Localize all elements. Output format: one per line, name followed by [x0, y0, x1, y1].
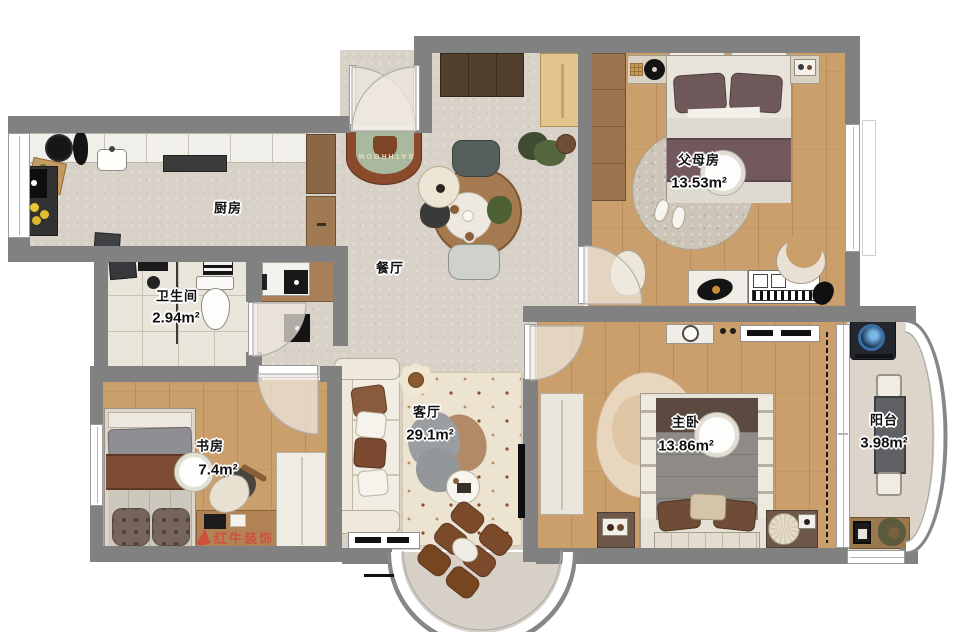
room-area-parents: 13.53m² [671, 176, 727, 191]
parents-window [845, 124, 860, 252]
room-area-bathroom: 2.94m² [152, 311, 200, 326]
plant-pot-icon [556, 134, 576, 154]
laptop-icon [204, 514, 226, 529]
pillow [690, 493, 727, 520]
bathroom-door-leaf [248, 302, 258, 356]
kitchen-faucet-icon [109, 146, 115, 152]
window-line [97, 427, 98, 503]
tray-icon [602, 518, 628, 536]
kitchen-window [8, 133, 30, 238]
hall-mat [284, 314, 310, 342]
entry-shoe-cabinet [440, 53, 524, 97]
tray-dot [607, 524, 614, 531]
dining-tulip-chair [418, 166, 460, 208]
cabinet-handle-icon [317, 223, 326, 226]
chair-dot-icon [436, 184, 445, 193]
burner-dot-icon [31, 180, 37, 186]
kitchen-sink [97, 149, 127, 171]
wardrobe-seam [301, 457, 303, 545]
radiator-slot [355, 537, 381, 543]
soundhole-dot [711, 285, 720, 294]
balcony-sliding-door [836, 324, 850, 548]
doormat-text: BATHROOM [347, 152, 422, 159]
parents-window-sill [862, 120, 876, 256]
cabinet-seam [561, 64, 564, 118]
radiator-slot [747, 330, 773, 336]
radiator-slot [387, 537, 409, 543]
floor-plan: BATHROOM [0, 0, 960, 632]
woven-basket-icon [768, 513, 800, 545]
study-wardrobe [276, 452, 326, 548]
pillow [108, 427, 193, 458]
wok-pan-icon [47, 136, 71, 160]
window-line [853, 127, 854, 249]
record-player-icon [644, 59, 665, 80]
master-wardrobe [540, 393, 584, 515]
wall-study-top-a [90, 366, 262, 382]
window-line [19, 136, 20, 235]
room-label-dining: 餐厅 [376, 262, 404, 275]
wall-living-bottom-left [342, 548, 392, 564]
book-icon [457, 483, 471, 493]
wall-kitchen-bottom [8, 246, 348, 262]
wall-tv [518, 444, 525, 518]
shower-head-icon [147, 276, 160, 289]
drain-dot-icon [294, 280, 299, 285]
wardrobe-seam [561, 400, 563, 510]
study-door-leaf [258, 365, 318, 378]
entry-threshold [350, 124, 414, 132]
entry-door-leaf [413, 65, 420, 131]
window-line [850, 557, 904, 558]
kitchen-plant-icon [73, 131, 88, 165]
master-door-leaf [524, 324, 536, 380]
cushion [353, 437, 387, 469]
wall-parents-right-upper [845, 36, 860, 124]
crescent-chair-cutout [786, 232, 822, 268]
room-label-kitchen: 厨房 [214, 202, 242, 215]
tray-icon [794, 59, 816, 76]
study-window [90, 424, 103, 506]
washer-controls [855, 354, 893, 358]
brand-watermark-text: 红牛装饰 [214, 528, 274, 547]
shower-fixture-icon [138, 262, 168, 271]
wall-kitchen-top [8, 116, 350, 133]
entry-door-leaf [349, 65, 356, 131]
tray-dot [807, 65, 812, 70]
brand-watermark: 红牛装饰 [196, 528, 274, 547]
balcony-chair [876, 374, 902, 398]
room-label-bathroom: 卫生间 [156, 290, 198, 303]
sofa-armrest [334, 358, 400, 380]
kitchen-appliance [163, 155, 227, 172]
bed-slats [641, 396, 656, 518]
bed-slats [758, 396, 773, 518]
tray-icon [798, 514, 816, 529]
tray-dot [798, 64, 804, 70]
parents-wardrobe [588, 53, 626, 201]
lemons-icon [30, 203, 39, 212]
wall-nook-right [333, 246, 348, 346]
wall-study-right [327, 366, 342, 562]
mirror-icon [682, 325, 699, 342]
balcony-bay-outer [907, 322, 945, 552]
teacup-icon [463, 230, 476, 243]
room-area-master: 13.86m² [658, 439, 714, 454]
radiator [740, 325, 820, 342]
tufted-cushion [152, 508, 190, 546]
brand-logo-icon [196, 529, 211, 546]
wall-parents-left [578, 50, 592, 246]
flower-mirror-center [408, 372, 424, 388]
wall-master-bottom [536, 548, 848, 564]
towel-shelf [203, 260, 233, 275]
frame-inner [858, 529, 867, 539]
wall-bathroom-right-upper [246, 246, 262, 302]
dining-chair-bottom [448, 244, 500, 280]
wall-study-left-upper [90, 380, 103, 424]
wall-master-top [523, 306, 862, 322]
glass-line [843, 325, 844, 547]
wall-living-master-divider [523, 378, 538, 562]
wall-study-bottom [90, 546, 342, 562]
radiator [348, 532, 420, 549]
vanity-sink-icon [284, 270, 308, 294]
balcony-bay-frame [905, 332, 933, 542]
cup-icon [453, 478, 459, 484]
balcony-chair [876, 472, 902, 496]
piano-lid [753, 274, 768, 288]
wall-top-right [414, 36, 860, 53]
study-bed-top [108, 412, 192, 428]
wall-kitchen-window-post [8, 238, 30, 248]
washing-machine [850, 318, 896, 360]
cushion [355, 411, 388, 440]
sofa-armrest [334, 510, 400, 534]
plate-center [462, 210, 474, 222]
snack-tray-icon [630, 63, 643, 76]
desk-chair [610, 250, 646, 296]
washer-drum-icon [858, 324, 885, 351]
mat-dot-icon [295, 326, 300, 331]
kitchen-tall-cabinet-lower [306, 196, 336, 252]
piano-keys-icon [752, 290, 816, 301]
wall-balcony-corner-top [900, 306, 916, 322]
kitchen-tall-cabinet-upper [306, 134, 336, 194]
room-label-parents: 父母房 [678, 154, 720, 167]
tray-dot [804, 519, 810, 525]
dining-chair-top [452, 140, 500, 177]
wall-bathroom-left [94, 246, 108, 380]
room-label-study: 书房 [196, 440, 224, 453]
picture-frame-icon [853, 521, 871, 544]
scale-bar [364, 574, 394, 577]
knob-dot-icon [730, 328, 736, 334]
plant-pot-icon [888, 527, 900, 539]
record-dot [652, 67, 657, 72]
balcony-bay-window [906, 327, 939, 547]
radiator-slot [781, 330, 811, 336]
room-label-balcony: 阳台 [870, 414, 898, 427]
room-label-master: 主卧 [672, 416, 700, 429]
balcony-bottom-window [847, 550, 905, 564]
cushion [357, 469, 389, 498]
tufted-cushion [112, 508, 150, 546]
tray-dot [617, 524, 624, 531]
balcony-plant-icon [878, 518, 906, 546]
bathroom-doormat: BATHROOM [346, 131, 422, 185]
room-area-living: 29.1m² [406, 428, 454, 443]
paper-icon [230, 514, 246, 527]
knob-dot-icon [720, 328, 726, 334]
room-area-balcony: 3.98m² [860, 436, 908, 451]
parents-door-leaf [578, 246, 589, 304]
glass-line [838, 433, 848, 435]
room-area-study: 7.4m² [198, 463, 237, 478]
room-label-living: 客厅 [413, 406, 441, 419]
